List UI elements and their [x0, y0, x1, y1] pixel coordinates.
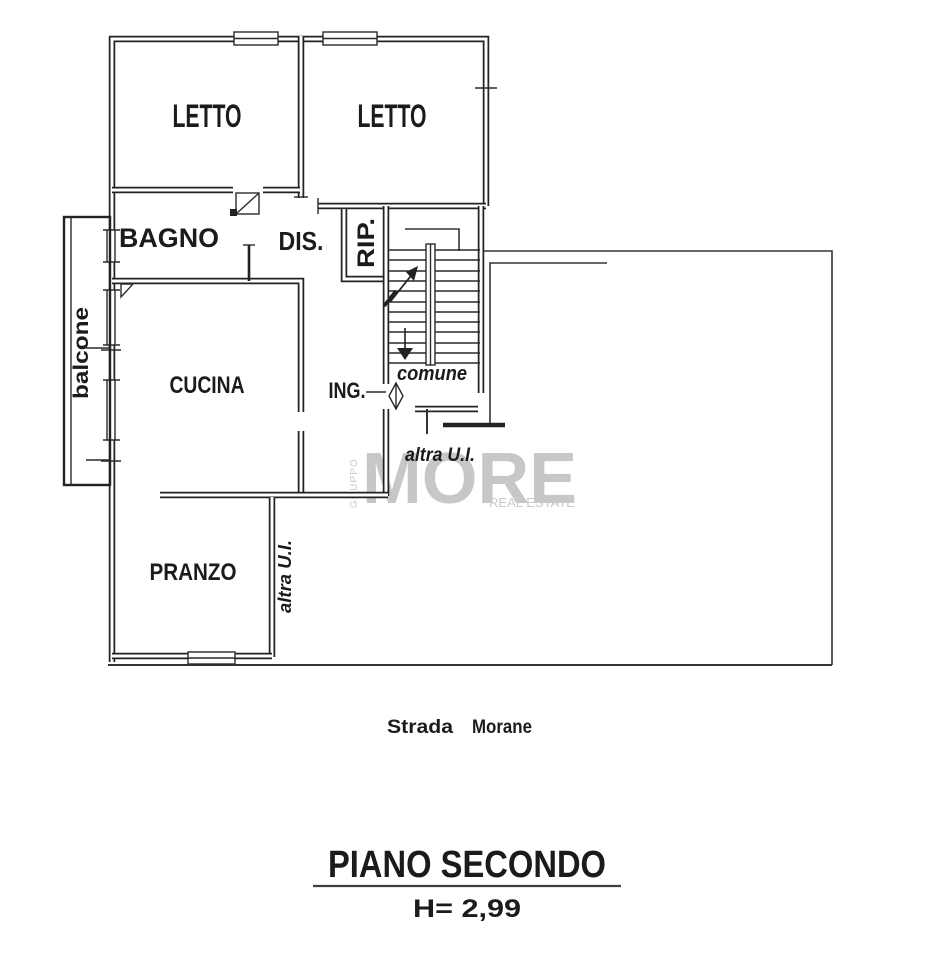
- caption-height-value: H= 2,99: [413, 895, 521, 923]
- door-main-entrance: [366, 383, 403, 409]
- room-label-dis: DIS.: [279, 226, 324, 256]
- label-altra-ui-pranzo: altra U.I.: [275, 540, 295, 613]
- large-unit-inner-corner: [490, 263, 607, 423]
- door-swing-cucina: [121, 284, 133, 297]
- caption-floor-title: PIANO SECONDO: [328, 844, 606, 886]
- room-label-comune: comune: [397, 363, 467, 385]
- floorplan-drawing: GRUPPO MORE REAL ESTATE: [0, 0, 932, 962]
- watermark-gruppo-text: GRUPPO: [349, 458, 360, 508]
- watermark-tagline-text: REAL ESTATE: [489, 495, 575, 510]
- caption: PIANO SECONDO H= 2,99: [313, 844, 621, 923]
- floorplan-page: GRUPPO MORE REAL ESTATE: [0, 0, 932, 962]
- room-label-ing: ING.: [329, 378, 366, 403]
- label-altra-ui-stair: altra U.I.: [405, 445, 475, 466]
- room-label-pranzo: PRANZO: [150, 559, 237, 586]
- window-top-left: [234, 32, 278, 45]
- room-label-cucina: CUCINA: [170, 372, 245, 399]
- street-word-2: Morane: [472, 717, 532, 738]
- window-pranzo: [188, 652, 235, 664]
- stairwell: [384, 229, 480, 365]
- door-bagno: [243, 245, 255, 281]
- window-top-right: [323, 32, 377, 45]
- room-label-balcone: balcone: [70, 307, 93, 399]
- stair-down-arrow: [397, 328, 413, 360]
- room-label-rip: RIP.: [353, 218, 380, 268]
- door-letto-left: [230, 185, 263, 216]
- room-label-letto-left: LETTO: [173, 98, 242, 134]
- room-label-bagno: BAGNO: [119, 223, 219, 253]
- street-label: Strada Morane: [387, 717, 532, 738]
- street-word-1: Strada: [387, 717, 453, 738]
- room-label-letto-right: LETTO: [358, 98, 427, 134]
